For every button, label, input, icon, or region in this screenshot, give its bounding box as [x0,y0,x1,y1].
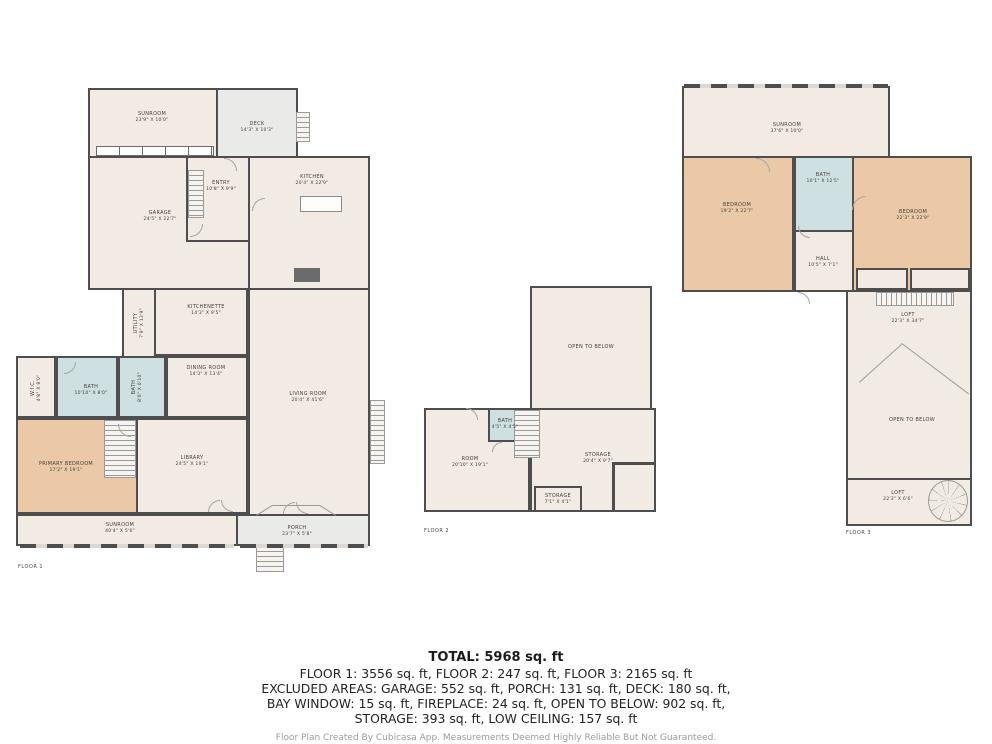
f3-bedroom-left [682,156,794,292]
floor-caption: FLOOR 2 [424,528,449,534]
stairs [296,112,310,142]
f2-storage-small [534,486,582,512]
stairs [370,400,385,464]
summary-line-floors: FLOOR 1: 3556 sq. ft, FLOOR 2: 247 sq. f… [0,666,992,681]
f1-sunroom-bottom [16,514,238,546]
f3-sunroom [682,86,890,158]
window-strip [20,544,234,548]
f1-deck [216,88,298,160]
stairs [876,292,954,306]
summary-total: TOTAL: 5968 sq. ft [0,650,992,665]
f1-wic [16,356,56,418]
f3-closet-2 [910,268,970,290]
kitchen-island [300,196,342,212]
f3-loft-upper [846,290,972,480]
window-strip [684,84,888,88]
f2-open-to-below [530,286,652,410]
floor-plan-canvas: SUNROOM23'9" X 10'0"DECK14'3" X 10'3"GAR… [0,0,992,744]
footer-credit: Floor Plan Created By Cubicasa App. Meas… [0,733,992,743]
f1-kitchenette [154,288,248,356]
f1-porch [236,514,370,546]
area-summary: TOTAL: 5968 sq. ft FLOOR 1: 3556 sq. ft,… [0,650,992,743]
f3-closet-1 [856,268,908,290]
floor-caption: FLOOR 1 [18,564,43,570]
door-arc [798,292,810,304]
wall-segment [612,462,656,465]
spiral-staircase [928,480,968,522]
summary-line-excluded-2: BAY WINDOW: 15 sq. ft, FIREPLACE: 24 sq.… [0,696,992,711]
f1-living-room [248,288,370,516]
stairs [514,410,540,458]
summary-line-excluded-1: EXCLUDED AREAS: GARAGE: 552 sq. ft, PORC… [0,681,992,696]
f1-utility [122,288,156,358]
f3-bath [794,156,854,232]
floor-caption: FLOOR 3 [846,530,871,536]
window-row [96,146,214,156]
summary-line-excluded-3: STORAGE: 393 sq. ft, LOW CEILING: 157 sq… [0,711,992,726]
f1-dining-room [166,356,248,418]
stairs [188,170,204,218]
f1-bath-2 [118,356,166,418]
window-strip [240,544,368,548]
f3-hall [794,230,854,292]
fireplace [294,268,320,282]
wall-segment [612,462,615,512]
stairs [256,546,284,572]
